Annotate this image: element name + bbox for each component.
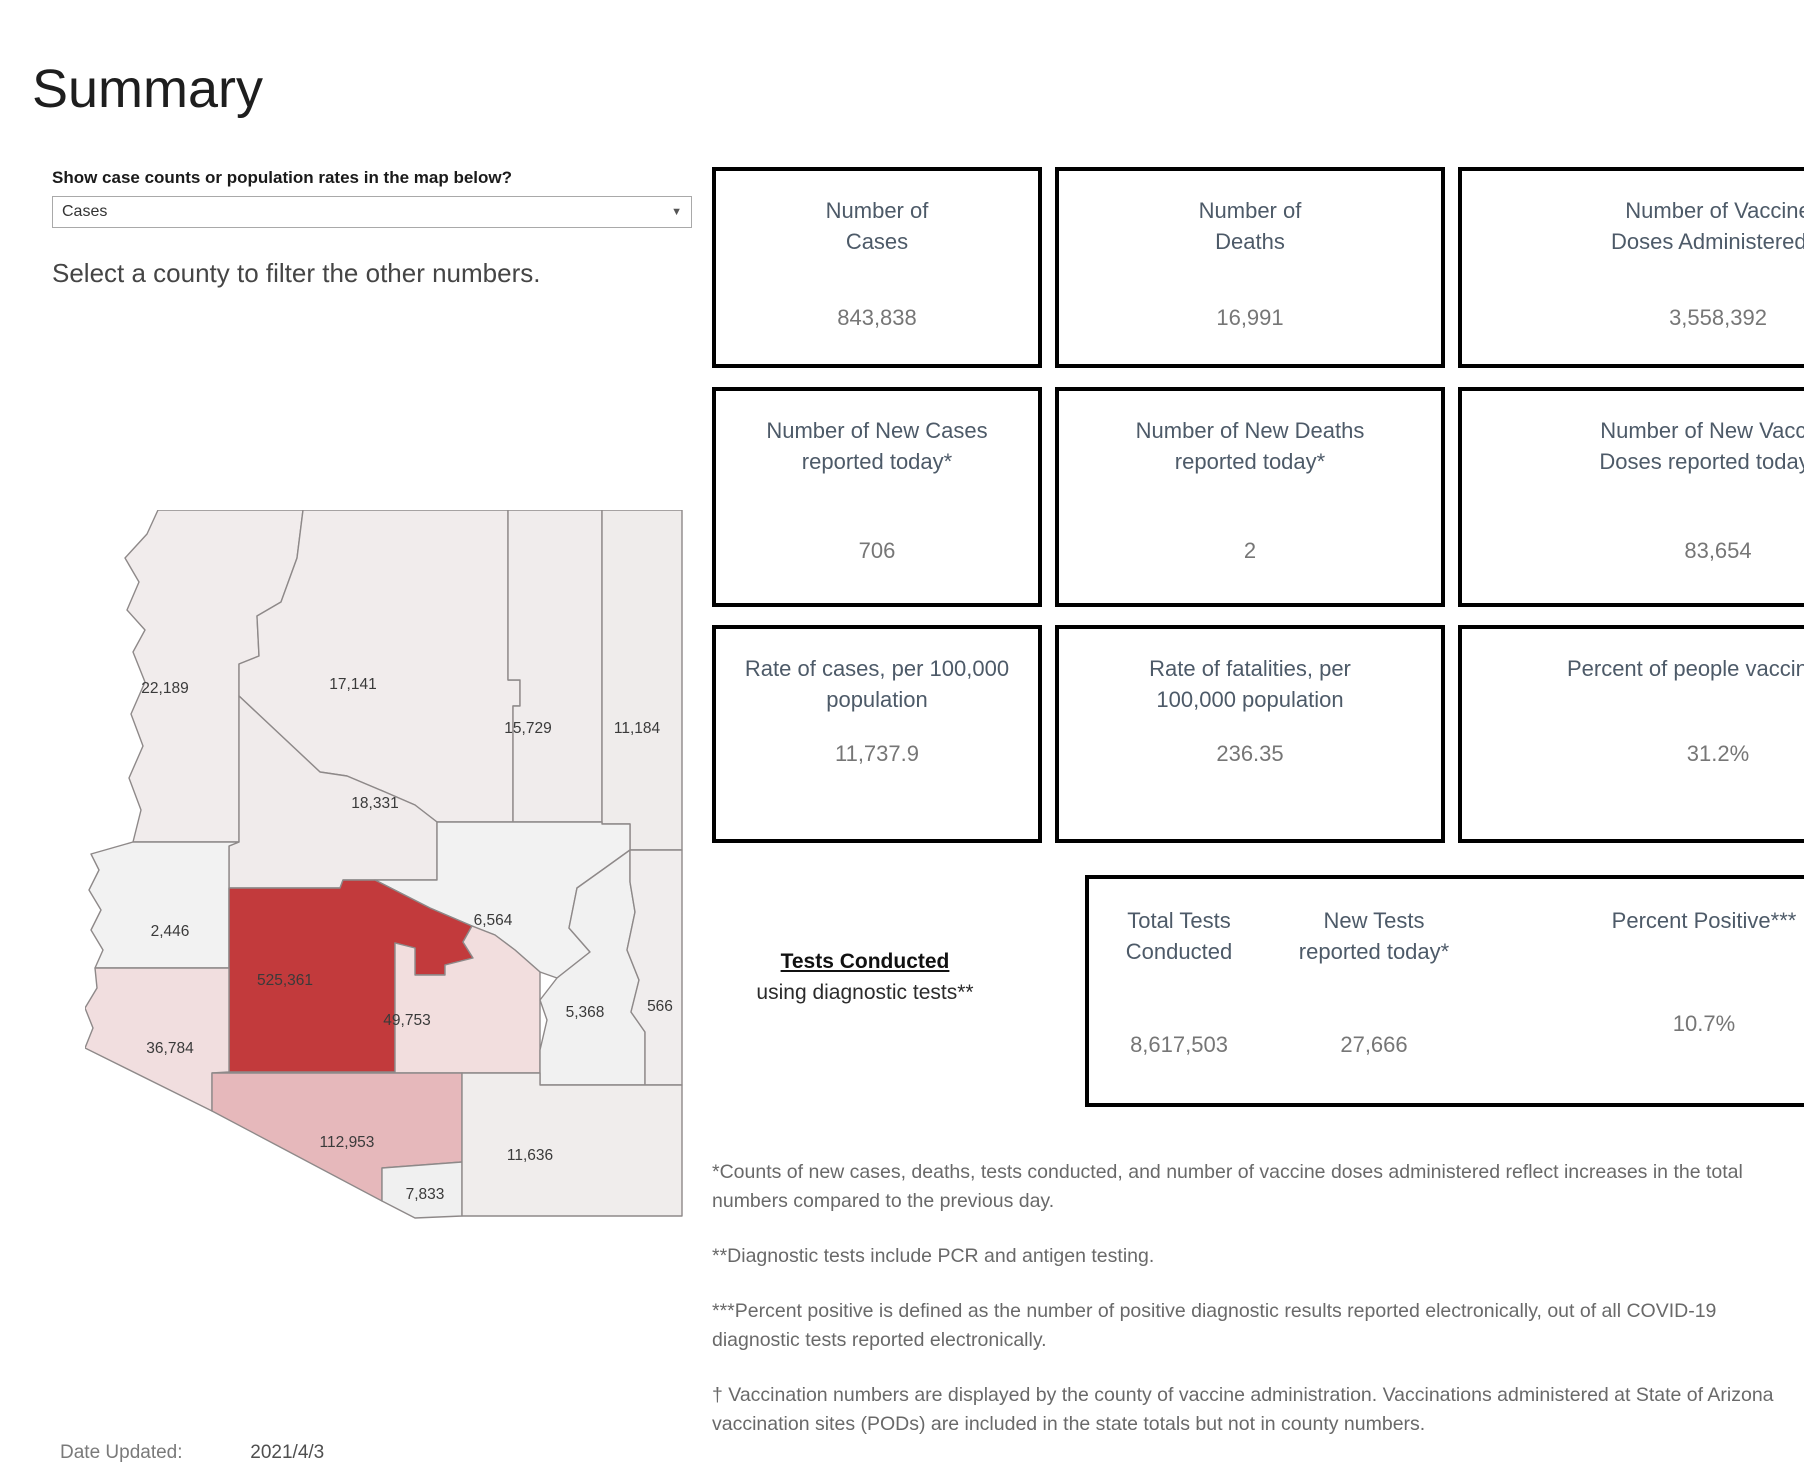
footnote-new-counts: *Counts of new cases, deaths, tests cond… — [712, 1158, 1804, 1216]
date-updated-label: Date Updated: — [60, 1442, 245, 1464]
footnote-diagnostic-tests: **Diagnostic tests include PCR and antig… — [712, 1242, 1804, 1271]
footnote-vaccination-numbers: † Vaccination numbers are displayed by t… — [712, 1381, 1804, 1439]
stat-box-value: 236.35 — [1059, 741, 1441, 767]
tests-column-label-line: New Tests — [1269, 905, 1479, 936]
stat-box-label-line: Cases — [728, 226, 1026, 257]
stat-box-label-line: reported today* — [728, 446, 1026, 477]
stat-box-label: Number of New Cases reported today* — [716, 415, 1038, 477]
tests-column-value: 27,666 — [1269, 1032, 1479, 1058]
stat-box-label: Number of New Deaths reported today* — [1059, 415, 1441, 477]
date-updated-row: Date Updated: 2021/4/3 — [60, 1442, 324, 1464]
tests-percent-positive-column: Percent Positive*** 10.7% — [1589, 879, 1804, 1103]
tests-column-value: 10.7% — [1589, 1011, 1804, 1037]
tests-column-label: Percent Positive*** — [1589, 905, 1804, 936]
stat-box-value: 706 — [716, 538, 1038, 564]
stat-box-value: 843,838 — [716, 305, 1038, 331]
stat-box-label-line: population — [728, 684, 1026, 715]
county-value-graham: 5,368 — [566, 1004, 605, 1021]
tests-column-label-line: reported today* — [1269, 936, 1479, 967]
footnotes-block: *Counts of new cases, deaths, tests cond… — [712, 1158, 1804, 1465]
county-value-santa-cruz: 7,833 — [406, 1186, 445, 1203]
arizona-county-map: 22,189 17,141 15,729 11,184 18,331 2,446… — [85, 510, 685, 1220]
stat-box-number-of-deaths: Number of Deaths 16,991 — [1055, 167, 1445, 368]
map-metric-label: Show case counts or population rates in … — [52, 168, 512, 188]
tests-column-label-line: Total Tests — [1089, 905, 1269, 936]
stat-box-vaccine-doses-administered: Number of Vaccine Doses Administered † 3… — [1458, 167, 1804, 368]
stat-box-label: Number of New Vaccine Doses reported tod… — [1462, 415, 1804, 477]
county-value-navajo: 15,729 — [504, 720, 551, 737]
stat-box-value: 3,558,392 — [1462, 305, 1804, 331]
county-shape-navajo[interactable] — [508, 510, 602, 822]
stat-box-label-line: Number of New Vaccine — [1474, 415, 1804, 446]
stat-box-label-line: Number of New Cases — [728, 415, 1026, 446]
stat-box-fatality-rate: Rate of fatalities, per 100,000 populati… — [1055, 625, 1445, 843]
stat-box-label-line: reported today* — [1071, 446, 1429, 477]
stat-box-case-rate: Rate of cases, per 100,000 population 11… — [712, 625, 1042, 843]
stat-box-label: Number of Deaths — [1059, 195, 1441, 257]
stat-box-value: 31.2% — [1462, 741, 1804, 767]
stat-box-value: 16,991 — [1059, 305, 1441, 331]
county-value-cochise: 11,636 — [507, 1147, 553, 1164]
county-value-pinal: 49,753 — [383, 1012, 430, 1029]
stat-box-number-of-cases: Number of Cases 843,838 — [712, 167, 1042, 368]
county-shape-cochise[interactable] — [462, 1073, 682, 1216]
county-value-apache: 11,184 — [614, 720, 661, 737]
map-hint-text: Select a county to filter the other numb… — [52, 258, 540, 289]
county-value-yuma: 36,784 — [146, 1040, 194, 1057]
stat-box-label-line: 100,000 population — [1071, 684, 1429, 715]
county-value-pima: 112,953 — [320, 1134, 375, 1151]
county-value-greenlee: 566 — [647, 998, 673, 1015]
tests-column-value: 8,617,503 — [1089, 1032, 1269, 1058]
chevron-down-icon: ▼ — [671, 197, 682, 227]
stat-box-new-vaccine-doses-today: Number of New Vaccine Doses reported tod… — [1458, 387, 1804, 607]
date-updated-value: 2021/4/3 — [250, 1442, 324, 1463]
tests-conducted-heading: Tests Conducted — [690, 950, 1040, 974]
stat-box-label-line: Doses Administered † — [1474, 226, 1804, 257]
stat-box-label: Rate of fatalities, per 100,000 populati… — [1059, 653, 1441, 715]
stat-box-percent-vaccinated: Percent of people vaccinated † 31.2% — [1458, 625, 1804, 843]
tests-conducted-panel: Total Tests Conducted 8,617,503 New Test… — [1085, 875, 1804, 1107]
stat-box-label-line: Number of Vaccine — [1474, 195, 1804, 226]
stat-box-new-cases-today: Number of New Cases reported today* 706 — [712, 387, 1042, 607]
stat-box-label: Number of Vaccine Doses Administered † — [1462, 195, 1804, 257]
stat-box-label-line: Number of — [728, 195, 1026, 226]
county-value-maricopa: 525,361 — [257, 972, 313, 989]
stat-box-label-line: Percent of people vaccinated † — [1474, 653, 1804, 684]
tests-column-label-line: Conducted — [1089, 936, 1269, 967]
page-title: Summary — [32, 58, 263, 120]
county-shape-apache[interactable] — [602, 510, 682, 850]
stat-box-value: 83,654 — [1462, 538, 1804, 564]
stat-box-label: Percent of people vaccinated † — [1462, 653, 1804, 684]
county-value-coconino: 17,141 — [329, 676, 376, 693]
map-metric-dropdown[interactable]: Cases ▼ — [52, 196, 692, 228]
county-shape-la-paz[interactable] — [89, 842, 239, 968]
county-value-la-paz: 2,446 — [151, 923, 190, 940]
footnote-percent-positive: ***Percent positive is defined as the nu… — [712, 1297, 1804, 1355]
map-metric-selected-value: Cases — [62, 203, 107, 220]
stat-box-label-line: Doses reported today* † — [1474, 446, 1804, 477]
tests-total-column: Total Tests Conducted 8,617,503 — [1089, 879, 1269, 1103]
county-value-gila: 6,564 — [474, 912, 513, 929]
stat-box-new-deaths-today: Number of New Deaths reported today* 2 — [1055, 387, 1445, 607]
tests-conducted-subheading: using diagnostic tests** — [690, 981, 1040, 1005]
stat-box-label-line: Number of New Deaths — [1071, 415, 1429, 446]
tests-new-today-column: New Tests reported today* 27,666 — [1269, 879, 1479, 1103]
tests-conducted-heading-block: Tests Conducted using diagnostic tests** — [690, 950, 1040, 1005]
stat-box-label-line: Rate of fatalities, per — [1071, 653, 1429, 684]
county-value-yavapai: 18,331 — [351, 795, 398, 812]
county-value-mohave: 22,189 — [141, 680, 188, 697]
stat-box-label: Rate of cases, per 100,000 population — [716, 653, 1038, 715]
stat-box-label-line: Rate of cases, per 100,000 — [728, 653, 1026, 684]
stat-box-label-line: Deaths — [1071, 226, 1429, 257]
stat-box-label-line: Number of — [1071, 195, 1429, 226]
stat-box-label: Number of Cases — [716, 195, 1038, 257]
stat-box-value: 2 — [1059, 538, 1441, 564]
tests-column-label: New Tests reported today* — [1269, 905, 1479, 967]
tests-column-label: Total Tests Conducted — [1089, 905, 1269, 967]
tests-column-label-line: Percent Positive*** — [1589, 905, 1804, 936]
stat-box-value: 11,737.9 — [716, 741, 1038, 767]
summary-stat-grid: Number of Cases 843,838 Number of Deaths… — [712, 167, 1804, 843]
